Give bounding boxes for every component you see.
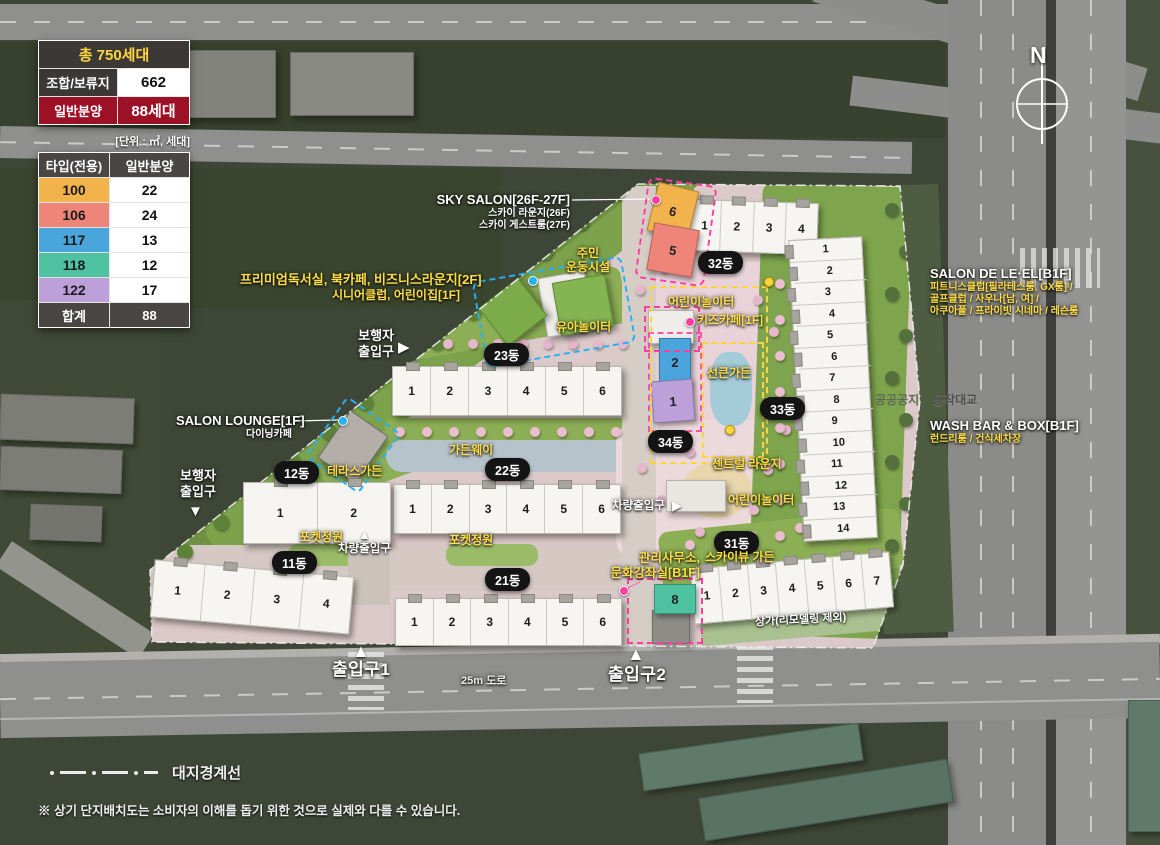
gate-1-label: 출입구1	[332, 660, 390, 680]
unit-2: 2	[434, 599, 472, 645]
tree-icon	[611, 427, 621, 437]
wash-bar-title: WASH BAR & BOX[B1F]	[930, 418, 1070, 434]
gate-vehicle-right: 차량출입구	[612, 500, 665, 514]
summary-row-label: 일반분양	[39, 97, 117, 124]
summary-row-value: 88세대	[118, 97, 189, 124]
unit-3: 3	[469, 367, 507, 415]
unit-1: 1	[396, 599, 434, 645]
unit-6: 6	[584, 599, 621, 645]
boundary-line-icon	[50, 771, 158, 775]
building-21: 123456	[395, 598, 622, 646]
tree-icon	[775, 531, 785, 541]
unit-2: 2	[720, 201, 754, 252]
tree-icon	[899, 413, 913, 427]
count-cell: 22	[110, 178, 189, 202]
salon-de-sub3: 아쿠아풀 / 프라이빗 시네마 / 레슨룸	[930, 306, 1070, 318]
summary-title: 총 750세대	[39, 41, 189, 68]
gate-arrow-right-icon: ▶	[398, 340, 410, 355]
gate-vehicle-left: 차량출입구	[338, 543, 391, 557]
tree-icon	[637, 463, 647, 473]
unit-2: 2	[432, 485, 470, 533]
boundary-legend: 대지경계선	[50, 762, 241, 783]
gate2-arrow-icon: ▲	[627, 645, 645, 663]
label-road-25m: 25m 도로	[461, 675, 506, 688]
label-public-land: 공공공지	[875, 393, 919, 407]
tree-icon	[769, 327, 779, 337]
enclosure-sunken-garden	[702, 342, 764, 458]
unit-6: 6	[584, 367, 621, 415]
unit-3: 3	[470, 485, 508, 533]
unit-5: 5	[545, 485, 583, 533]
road-top-laneline	[0, 21, 948, 23]
offsite-green-roof	[1128, 700, 1160, 832]
type-col-header: 타입(전용)	[39, 153, 109, 177]
unit-14: 14	[807, 516, 880, 540]
ped-line2: 출입구	[342, 344, 394, 360]
building-pill-22: 22동	[485, 458, 530, 481]
salon-lounge-title: SALON LOUNGE[1F]	[176, 413, 292, 429]
tree-icon	[775, 387, 785, 397]
label-children-playground-top: 어린이놀이터	[668, 295, 734, 309]
ped-line2: 출입구	[172, 484, 224, 500]
tree-icon	[530, 427, 540, 437]
offsite-building	[0, 446, 123, 494]
offsite-building	[29, 504, 102, 542]
offsite-building	[0, 394, 135, 445]
label-gardenway: 가든웨이	[449, 443, 493, 457]
ped-line1: 보행자	[342, 328, 394, 344]
tree-icon	[609, 184, 625, 200]
summary-table: 총 750세대 조합/보류지 662 일반분양 88세대	[38, 40, 190, 125]
leader-dot	[528, 276, 538, 286]
label-sunken-garden: 선큰가든	[707, 366, 751, 380]
gate-pedestrian-top: 보행자 출입구	[342, 328, 394, 359]
jumin-line2: 운동시설	[556, 260, 620, 274]
count-cell: 12	[110, 253, 189, 277]
label-salon-de-le-el: SALON DE LE·EL[B1F] 피트니스클럽[필라테스룸, GX룸] /…	[930, 266, 1070, 318]
label-jumin-sports: 주민 운동시설	[556, 246, 620, 275]
label-salon-lounge: SALON LOUNGE[1F] 다이닝카페	[176, 413, 292, 441]
site-plan-map: 123456 123456 123456 12 1234 1234567 123…	[0, 0, 1160, 845]
boundary-legend-label: 대지경계선	[172, 762, 241, 783]
unit-4: 4	[300, 573, 353, 633]
leader-dot	[619, 586, 629, 596]
type-table: 타입(전용) 일반분양 100 22 106 24 117 13 118 12 …	[38, 152, 190, 328]
tree-icon	[775, 279, 785, 289]
count-cell: 13	[110, 228, 189, 252]
label-central-lounge: 센트럴 라운지	[712, 457, 782, 471]
tree-icon	[573, 214, 589, 230]
building-pill-34: 34동	[648, 430, 693, 453]
gate1-arrow-icon: ▲	[352, 642, 370, 660]
building-pill-11: 11동	[272, 551, 317, 574]
crosswalk	[737, 645, 773, 703]
premium-line2: 시니어클럽, 어린이집[1F]	[240, 288, 460, 302]
type-cell: 122	[39, 278, 109, 302]
mgmt-line1: 관리사무소,	[572, 551, 700, 566]
tree-icon	[422, 427, 432, 437]
tree-icon	[468, 339, 478, 349]
disclaimer: ※ 상기 단지배치도는 소비자의 이해를 돕기 위한 것으로 실제와 다를 수 …	[38, 800, 460, 819]
label-sky-salon: SKY SALON[26F-27F] 스카이 라운지(26F) 스카이 게스트룸…	[432, 192, 570, 232]
unit-1: 1	[394, 485, 432, 533]
summary-row-label: 조합/보류지	[39, 69, 117, 96]
unit-4: 4	[509, 599, 547, 645]
type-cell: 100	[39, 178, 109, 202]
vehicle-arrow-right-icon: ▶	[672, 499, 682, 512]
corner-dot	[725, 425, 735, 435]
label-premium-facilities: 프리미엄독서실, 북카페, 비즈니스라운지[2F] 시니어클럽, 어린이집[1F…	[240, 272, 460, 302]
corner-dot	[764, 277, 774, 287]
label-children-playground-bottom: 어린이놀이터	[728, 493, 794, 507]
offsite-building	[290, 52, 414, 116]
building-pill-23: 23동	[484, 343, 529, 366]
sky-salon-title: SKY SALON[26F-27F]	[432, 192, 570, 208]
ped-line1: 보행자	[172, 468, 224, 484]
building-pill-21: 21동	[485, 568, 530, 591]
tree-icon	[635, 285, 645, 295]
tree-icon	[885, 371, 899, 385]
unit-3: 3	[250, 569, 304, 629]
tree-icon	[443, 339, 453, 349]
jumin-line1: 주민	[556, 246, 620, 260]
type-cell: 118	[39, 253, 109, 277]
unit-1: 1	[151, 560, 205, 620]
summary-row-value: 662	[118, 69, 189, 96]
sky-salon-sub2: 스카이 게스트룸(27F)	[432, 220, 570, 232]
tree-icon	[537, 244, 553, 260]
mgmt-line2: 문화강좌실[B1F]	[572, 566, 700, 581]
tree-icon	[885, 203, 899, 217]
unit-4: 4	[508, 367, 546, 415]
unit-7: 7	[861, 552, 893, 608]
gate-pedestrian-left: 보행자 출입구	[172, 468, 224, 499]
leader-dot	[651, 195, 661, 205]
label-pocket-garden-2: 포켓정원	[449, 533, 493, 547]
tree-icon	[557, 427, 567, 437]
enclosure-shop-unit8	[627, 578, 703, 644]
label-yua-playground: 유아놀이터	[556, 320, 611, 334]
count-col-header: 일반분양	[110, 153, 189, 177]
leader-dot	[685, 317, 695, 327]
count-cell: 17	[110, 278, 189, 302]
tree-icon	[503, 427, 513, 437]
type-cell: 117	[39, 228, 109, 252]
unit-5: 5	[547, 599, 585, 645]
tree-icon	[695, 527, 705, 537]
tree-icon	[476, 427, 486, 437]
salon-de-sub1: 피트니스클럽[필라테스룸, GX룸] /	[930, 282, 1070, 294]
label-pocket-garden-1: 포켓정원	[299, 530, 343, 544]
gate-arrow-down-icon: ▼	[188, 504, 203, 519]
unit-4: 4	[507, 485, 545, 533]
label-terrace-garden: 테라스가든	[327, 464, 382, 478]
unit-3: 3	[753, 202, 787, 253]
unit-1: 1	[393, 367, 431, 415]
salon-de-sub2: 골프클럽 / 사우나[남, 여] /	[930, 294, 1070, 306]
tree-icon	[775, 351, 785, 361]
salon-de-title: SALON DE LE·EL[B1F]	[930, 266, 1070, 282]
wash-bar-sub: 런드리룸 / 건식세차장	[930, 434, 1070, 446]
tree-icon	[899, 329, 913, 343]
building-23: 123456	[392, 366, 622, 416]
unit-2: 2	[200, 565, 254, 625]
leader-dot	[338, 416, 348, 426]
unit-note: [단위 : ㎡, 세대]	[72, 133, 190, 149]
tree-icon	[885, 455, 899, 469]
north-label: N	[1030, 42, 1047, 69]
compass: N	[1014, 48, 1070, 149]
building-pill-12: 12동	[274, 461, 319, 484]
building-22: 123456	[393, 484, 621, 534]
unit-5: 5	[546, 367, 584, 415]
salon-lounge-sub: 다이닝카페	[176, 429, 292, 441]
tree-icon	[775, 315, 785, 325]
building-pill-33: 33동	[760, 397, 805, 420]
label-skyview-garden: 스카이뷰 가든	[705, 550, 775, 564]
label-wash-bar: WASH BAR & BOX[B1F] 런드리룸 / 건식세차장	[930, 418, 1070, 446]
tree-icon	[449, 427, 459, 437]
tree-icon	[775, 423, 785, 433]
building-pill-32: 32동	[698, 251, 743, 274]
label-dongjak-bridge: 동작대교	[933, 393, 977, 407]
building-33: 1234567891011121314	[788, 236, 878, 541]
total-value: 88	[110, 303, 189, 327]
tree-icon	[213, 514, 229, 530]
gate-2-label: 출입구2	[608, 665, 666, 685]
type-cell: 106	[39, 203, 109, 227]
count-cell: 24	[110, 203, 189, 227]
sky-salon-sub1: 스카이 라운지(26F)	[432, 208, 570, 220]
tree-icon	[584, 427, 594, 437]
premium-line1: 프리미엄독서실, 북카페, 비즈니스라운지[2F]	[240, 272, 460, 288]
unit-2: 2	[431, 367, 469, 415]
unit-3: 3	[471, 599, 509, 645]
label-mgmt-office: 관리사무소, 문화강좌실[B1F]	[572, 551, 700, 581]
vehicle-arrow-up-icon: ▲	[358, 528, 371, 541]
label-kids-cafe: 키즈카페[1F]	[697, 313, 763, 327]
tree-icon	[885, 287, 899, 301]
tree-icon	[685, 540, 695, 550]
total-label: 합계	[39, 303, 109, 327]
